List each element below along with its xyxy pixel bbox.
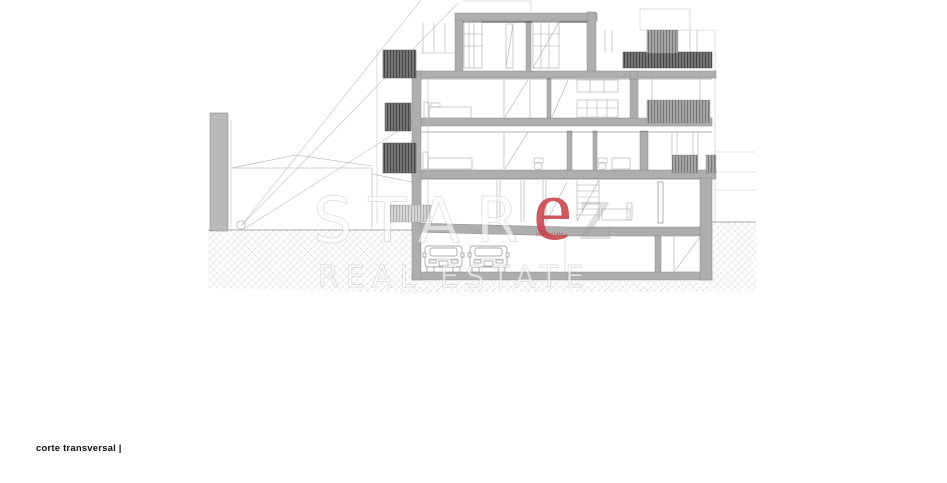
watermark-estate-text: REAL ESTATE xyxy=(318,260,591,295)
louver-panel xyxy=(383,50,416,78)
watermark: STAR e z real estate REAL ESTATE xyxy=(313,162,614,295)
watermark-suffix-letter: z xyxy=(578,169,614,257)
garage-door xyxy=(674,234,702,272)
interior-wall xyxy=(640,131,648,170)
wardrobe xyxy=(464,22,482,68)
louver-panel xyxy=(647,100,710,123)
bed xyxy=(424,102,471,118)
roof-slab xyxy=(455,13,597,21)
shelving xyxy=(533,22,559,68)
louver-panel xyxy=(383,143,416,173)
window-mullions xyxy=(672,131,698,155)
bed xyxy=(423,152,472,169)
doors xyxy=(504,132,528,169)
watermark-accent-letter: e xyxy=(533,162,572,259)
garage-wall xyxy=(655,236,661,272)
top-floor-right-wall xyxy=(587,12,596,72)
floor-slab-4 xyxy=(412,71,716,78)
louver-panel xyxy=(647,30,678,53)
louver-panel xyxy=(385,103,411,131)
doors xyxy=(504,80,568,118)
drawing-caption: corte transversal | xyxy=(36,443,122,454)
louver-panel xyxy=(706,155,716,173)
boundary-wall xyxy=(210,113,245,231)
watermark-brand-text: STAR xyxy=(313,184,535,257)
interior-wall xyxy=(547,78,551,118)
kitchen-cabinets xyxy=(577,80,618,117)
interior-wall xyxy=(526,21,531,72)
interior-wall xyxy=(630,71,638,118)
window-mullions xyxy=(420,23,458,53)
terrace-louver-rail xyxy=(623,52,712,68)
door xyxy=(506,24,513,68)
watermark-tagline: real estate xyxy=(536,232,564,238)
drawing-sheet: STAR e z real estate REAL ESTATE corte t… xyxy=(0,0,947,483)
section-drawing: STAR e z real estate REAL ESTATE xyxy=(0,0,947,483)
bathroom-wall xyxy=(593,131,597,170)
porch-column xyxy=(658,182,663,223)
louver-panel xyxy=(672,155,698,173)
